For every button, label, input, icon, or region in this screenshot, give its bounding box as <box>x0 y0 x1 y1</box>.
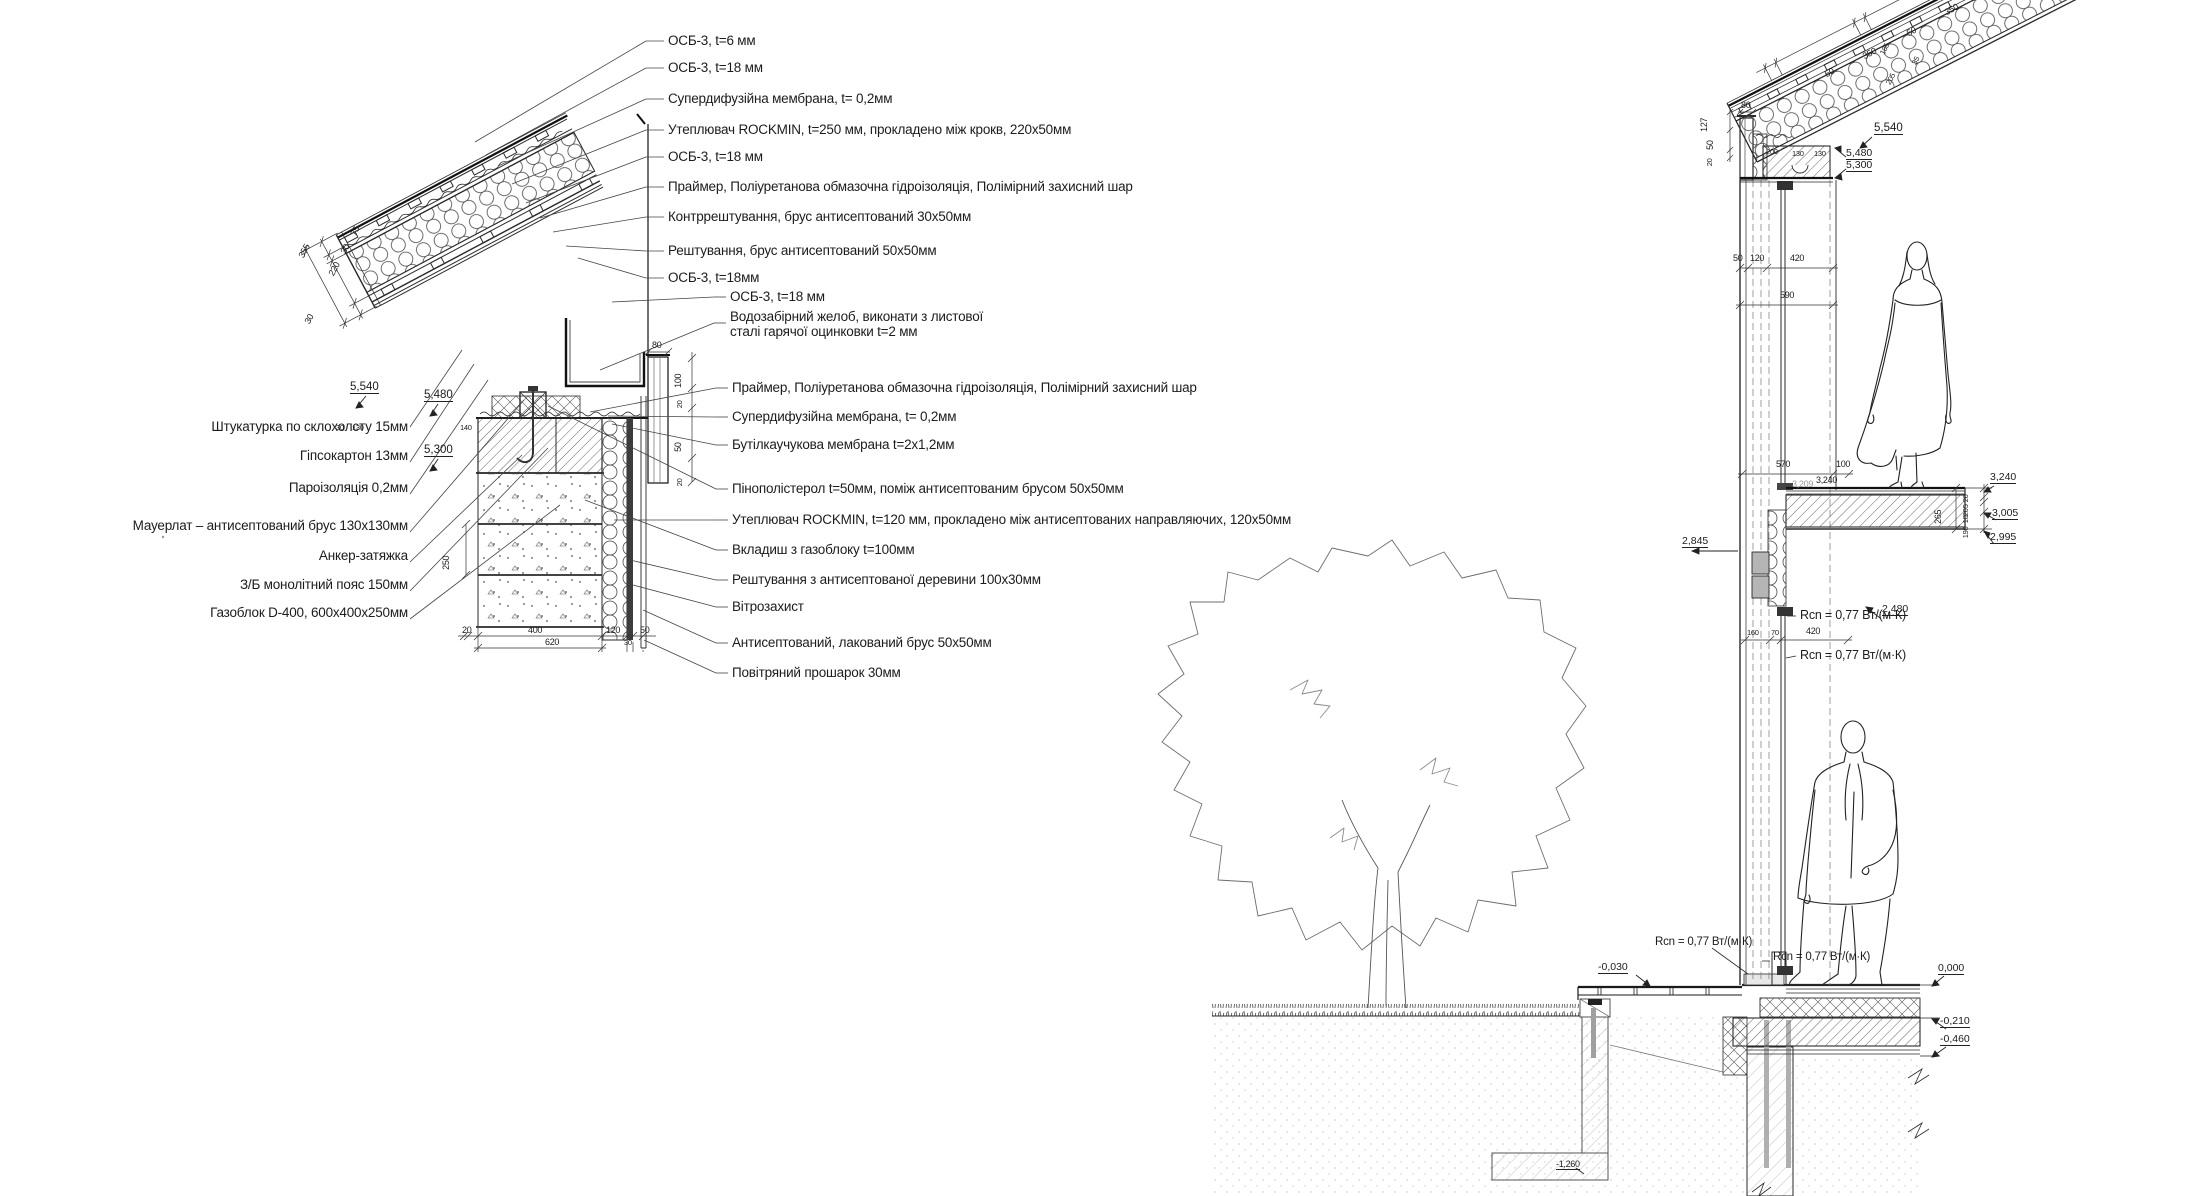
elevation-5300-right: 5,300 <box>1846 160 1872 172</box>
male-figure-outline <box>1790 721 1898 985</box>
right-roof-band <box>1719 0 2156 166</box>
callout-osb6: ОСБ-3, t=6 мм <box>668 34 755 49</box>
dim-floor-3240: 3,240 <box>1816 476 1837 486</box>
dim-floor-100: 100 <box>1836 460 1850 470</box>
callout-gas-block-insert: Вкладиш з газоблоку t=100мм <box>732 543 914 558</box>
callout-diffusion-membrane-b: Супердифузійна мембрана, t= 0,2мм <box>732 410 956 425</box>
callout-osb18-d: ОСБ-3, t=18 мм <box>730 290 825 305</box>
terrace-deck <box>1578 987 1742 1000</box>
callout-anchor: Анкер-затяжка <box>319 549 408 564</box>
callout-gutter: Водозабірний желоб, виконати з листової … <box>730 310 983 340</box>
rcn-label-4: Rcn = 0,77 Вт/(м·К) <box>1773 951 1870 964</box>
callout-lacquered-timber: Антисептований, лакований брус 50х50мм <box>732 636 992 651</box>
dim-floor-3209: 3,209 <box>1792 480 1813 490</box>
dim-stack-190: 190 <box>1962 527 1970 539</box>
dim-lintel-130b: 130 <box>1814 150 1826 158</box>
callout-gas-block: Газоблок D-400, 600х400х250мм <box>210 606 408 621</box>
dim-bottom-30: 30 <box>624 639 632 647</box>
elevation-minus-0210: -0,210 <box>1940 1016 1970 1028</box>
callout-gypsum: Гіпсокартон 13мм <box>300 449 408 464</box>
callout-counter-battens: Контррештування, брус антисептований 30х… <box>668 210 971 225</box>
dim-floor-265: 265 <box>1934 510 1944 524</box>
dim-mid-160: 160 <box>1747 629 1759 637</box>
dim-inner-140: 140 <box>460 424 472 432</box>
callout-gutter-line1: Водозабірний желоб, виконати з листової <box>730 310 983 325</box>
callout-battens-100x30: Рештування з антисептованої деревини 100… <box>732 573 1041 588</box>
elevation-minus-0030: -0,030 <box>1598 962 1628 974</box>
dim-stack-20a: 20 <box>1962 495 1970 503</box>
callout-windscreen: Вітрозахист <box>732 600 804 615</box>
callout-mauerlat: Мауерлат – антисептований брус 130х130мм <box>133 519 408 534</box>
rcn-label-2: Rcn = 0,77 Вт/(м·К) <box>1800 649 1906 663</box>
dim-stack-10: 10 <box>1962 516 1970 524</box>
dim-eave-50: 50 <box>1706 140 1716 149</box>
callout-battens: Рештування, брус антисептований 50х50мм <box>668 244 936 259</box>
elevation-5300-left: 5,300 <box>424 444 453 457</box>
callout-gutter-line2: сталі гарячої оцинковки t=2 мм <box>730 325 983 340</box>
elevation-5480-left: 5,480 <box>424 389 453 402</box>
dim-side-20a: 20 <box>676 401 684 409</box>
dim-side-50: 50 <box>674 442 684 451</box>
elevation-minus-0460: -0,460 <box>1940 1034 1970 1046</box>
callout-primer-a: Праймер, Поліуретанова обмазочна гідроіз… <box>668 180 1133 195</box>
architectural-drawing-canvas: Штукатурка по склохолсту 15мм Гіпсокарто… <box>0 0 2200 1196</box>
dim-inner-130: 130 <box>352 424 364 432</box>
dim-mid-420: 420 <box>1806 627 1820 637</box>
elevation-3240: 3,240 <box>1990 472 2016 484</box>
callout-rockmin-120: Утеплювач ROCKMIN, t=120 мм, прокладено … <box>732 513 1291 528</box>
callout-air-gap: Повітряний прошарок 30мм <box>732 666 901 681</box>
dim-bottom-50: 50 <box>640 626 649 636</box>
dim-bottom-400: 400 <box>528 626 542 636</box>
elevation-5480-right: 5,480 <box>1846 148 1872 160</box>
elevation-5540-left: 5,540 <box>350 381 379 394</box>
callout-diffusion-membrane-a: Супердифузійна мембрана, t= 0,2мм <box>668 92 892 107</box>
callout-primer-b: Праймер, Поліуретанова обмазочна гідроіз… <box>732 381 1197 396</box>
dim-lintel-130a: 130 <box>1792 150 1804 158</box>
dim-wall-420: 420 <box>1790 254 1804 264</box>
dim-side-20b: 20 <box>676 479 684 487</box>
callout-concrete-belt: З/Б монолітний пояс 150мм <box>240 578 408 593</box>
dim-inner-250: 250 <box>442 556 452 570</box>
dim-eave-20: 20 <box>1706 159 1714 167</box>
callout-osb18-a: ОСБ-3, t=18 мм <box>668 61 763 76</box>
elevation-0000: 0,000 <box>1938 963 1964 975</box>
dim-bottom-120: 120 <box>606 626 620 636</box>
callout-rockmin-250: Утеплювач ROCKMIN, t=250 мм, прокладено … <box>668 123 1071 138</box>
left-detail-roof-band <box>299 108 607 329</box>
rcn-label-1: Rcn = 0,77 Вт/(м·К) <box>1800 609 1906 623</box>
dim-eave-127: 127 <box>1700 118 1710 132</box>
callout-eps-50: Пінополістерол t=50мм, поміж антисептова… <box>732 482 1124 497</box>
dim-side-100: 100 <box>674 374 684 388</box>
rcn-label-3: Rcn = 0,77 Вт/(м·К) <box>1655 936 1752 949</box>
dim-inner-30: 30 <box>336 424 344 432</box>
callout-vapour-barrier: Пароізоляція 0,2мм <box>289 481 408 496</box>
elevation-2995: 2,995 <box>1990 532 2016 544</box>
elevation-minus-1260: -1,260 <box>1556 1160 1580 1170</box>
dim-bottom-20: 20 <box>462 626 471 636</box>
elevation-5540-right: 5,540 <box>1874 122 1903 135</box>
callout-plaster: Штукатурка по склохолсту 15мм <box>211 420 408 435</box>
dim-bottom-620: 620 <box>545 638 559 648</box>
dim-wall-120: 120 <box>1750 254 1764 264</box>
tree-outline <box>1158 540 1586 1008</box>
dim-eave-80: 80 <box>1741 101 1750 111</box>
callout-osb18-c: ОСБ-3, t=18мм <box>668 271 759 286</box>
female-figure-outline <box>1857 242 1951 488</box>
dim-floor-570: 570 <box>1776 460 1790 470</box>
callout-osb18-b: ОСБ-3, t=18 мм <box>668 150 763 165</box>
dim-side-80: 80 <box>652 341 661 351</box>
dim-wall-590: 590 <box>1780 291 1794 301</box>
elevation-3005: 3,005 <box>1992 508 2018 520</box>
dim-wall-50: 50 <box>1733 254 1742 264</box>
dim-lintel-200: 200 <box>1766 148 1778 156</box>
elevation-2845: 2,845 <box>1682 536 1708 548</box>
callout-butyl-membrane: Бутілкаучукова мембрана t=2х1,2мм <box>732 438 954 453</box>
dim-mid-70: 70 <box>1771 629 1779 637</box>
